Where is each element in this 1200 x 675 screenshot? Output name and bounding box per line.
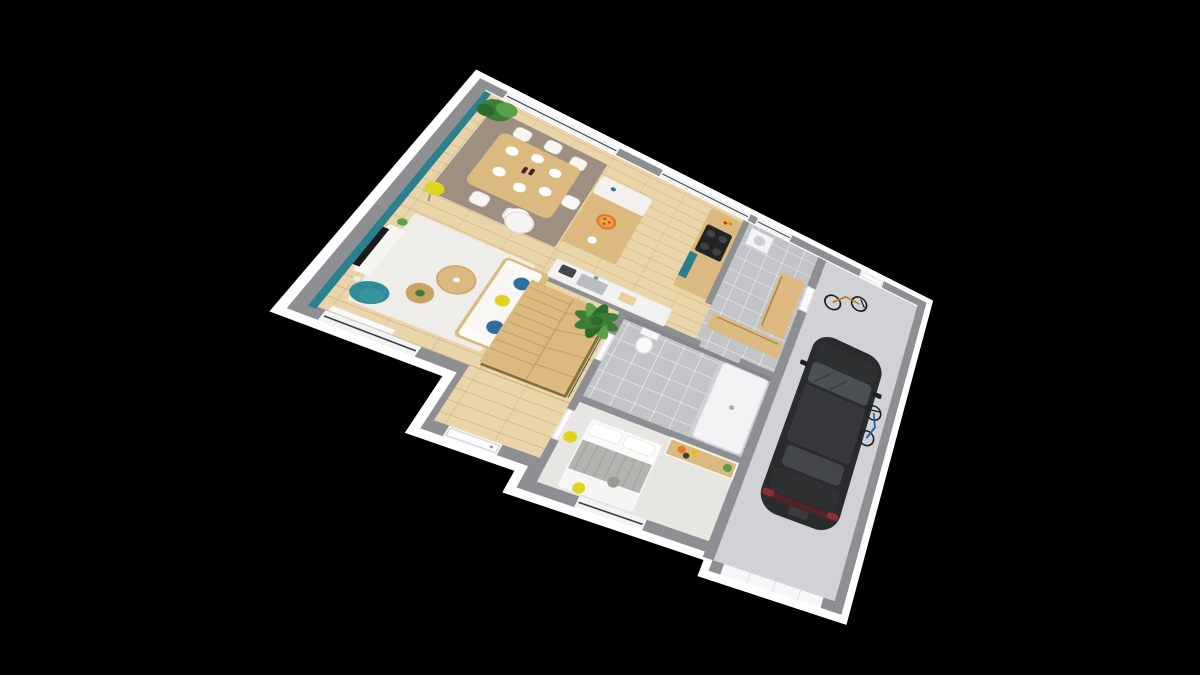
floor-plan-3d [203,84,922,625]
render-background [0,0,1200,675]
